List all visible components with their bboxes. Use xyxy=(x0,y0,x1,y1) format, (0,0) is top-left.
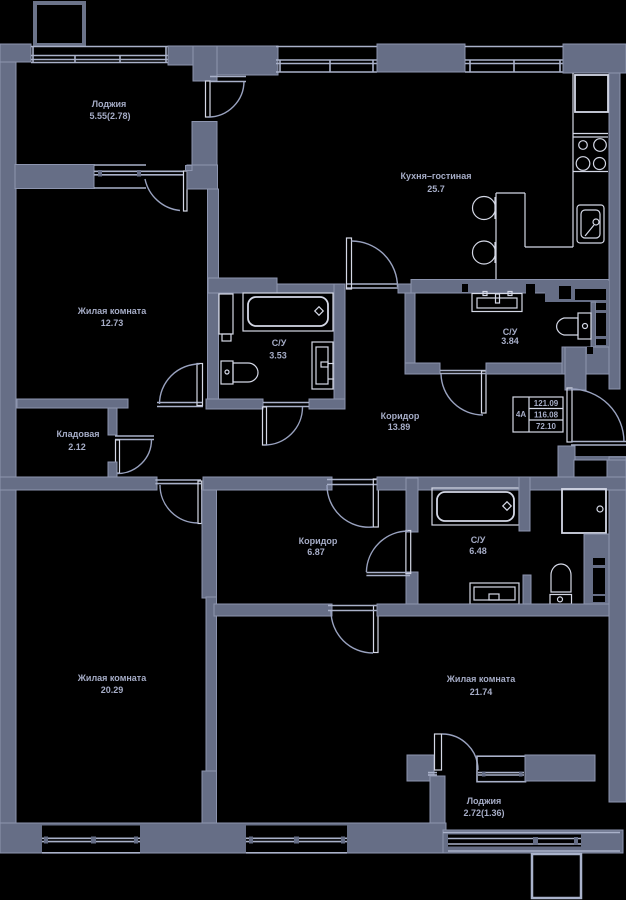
svg-text:6.48: 6.48 xyxy=(469,546,487,556)
svg-text:3.53: 3.53 xyxy=(269,351,287,361)
svg-text:Коридор: Коридор xyxy=(299,536,338,546)
svg-text:3.84: 3.84 xyxy=(501,336,519,346)
svg-text:Кладовая: Кладовая xyxy=(56,429,99,439)
svg-text:5.55(2.78): 5.55(2.78) xyxy=(89,111,130,121)
svg-text:Жилая комната: Жилая комната xyxy=(77,673,147,683)
svg-text:12.73: 12.73 xyxy=(101,318,124,328)
svg-text:21.74: 21.74 xyxy=(470,687,493,697)
svg-text:6.87: 6.87 xyxy=(307,547,325,557)
svg-text:13.89: 13.89 xyxy=(388,422,411,432)
svg-text:72.10: 72.10 xyxy=(536,422,557,431)
svg-text:25.7: 25.7 xyxy=(427,184,445,194)
svg-text:4А: 4А xyxy=(516,410,526,419)
svg-text:2.12: 2.12 xyxy=(68,442,86,452)
svg-text:Лоджия: Лоджия xyxy=(92,99,127,109)
svg-text:116.08: 116.08 xyxy=(534,411,559,420)
svg-text:Кухня–гостиная: Кухня–гостиная xyxy=(401,171,472,181)
svg-text:121.09: 121.09 xyxy=(534,399,559,408)
svg-text:С/У: С/У xyxy=(471,535,486,545)
svg-text:Жилая комната: Жилая комната xyxy=(446,674,516,684)
svg-text:Лоджия: Лоджия xyxy=(467,796,502,806)
svg-text:20.29: 20.29 xyxy=(101,685,124,695)
svg-text:Коридор: Коридор xyxy=(381,411,420,421)
svg-text:2.72(1.36): 2.72(1.36) xyxy=(463,808,504,818)
svg-text:С/У: С/У xyxy=(272,338,287,348)
svg-text:Жилая комната: Жилая комната xyxy=(77,306,147,316)
